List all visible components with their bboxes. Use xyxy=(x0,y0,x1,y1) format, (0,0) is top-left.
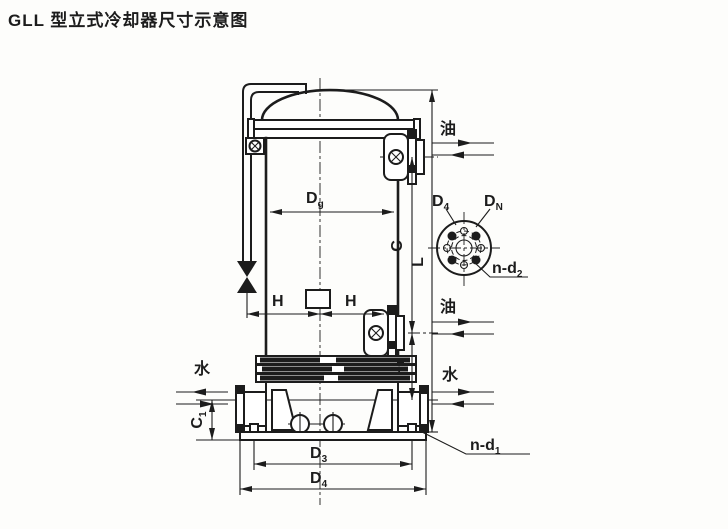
base-assembly xyxy=(236,382,428,440)
sight-glass xyxy=(306,290,330,308)
oil-mid-label: 油 xyxy=(440,297,456,316)
water-right-label: 水 xyxy=(442,365,459,384)
pipe-outer-line xyxy=(243,84,306,260)
oil-top-label: 油 xyxy=(440,119,456,138)
arrow-right xyxy=(458,140,472,147)
arrow-right xyxy=(458,319,472,326)
base-plate xyxy=(240,432,426,440)
d4-base-label: D4 xyxy=(310,470,328,490)
cooler-dimension-drawing: Dg H H C L L1 C1 D3 D4 n-d1 油 xyxy=(0,0,728,529)
skirt-gusset-right xyxy=(368,390,392,430)
dim-d4: D4 xyxy=(240,470,426,490)
h-right-label: H xyxy=(345,293,357,310)
flange-bolt-left xyxy=(246,138,264,154)
c1-label: C1 xyxy=(189,411,209,429)
flow-oil-mid: 油 xyxy=(432,297,494,338)
nozzle-cap xyxy=(416,140,424,174)
dim-d3: D3 xyxy=(254,445,412,465)
arrow-left xyxy=(450,152,464,159)
dn-detail-label: DN xyxy=(484,193,503,213)
c-label: C xyxy=(389,240,406,252)
base-bolt-block-left xyxy=(250,424,258,432)
flow-oil-top: 油 xyxy=(432,119,494,159)
flow-water-right: 水 xyxy=(432,365,494,408)
arrow-left xyxy=(192,389,206,396)
dg-label: Dg xyxy=(306,190,324,210)
valve-icon xyxy=(237,261,257,293)
base-bolt-block-right xyxy=(408,424,416,432)
h-left-label: H xyxy=(272,293,284,310)
pipe-inner-line xyxy=(251,92,298,260)
flange-bar-upper xyxy=(252,120,416,129)
water-left-label: 水 xyxy=(194,359,211,378)
dn-leader xyxy=(476,209,490,227)
dome-arc xyxy=(262,90,398,120)
d4-detail-label: D4 xyxy=(432,193,450,213)
d3-label: D3 xyxy=(310,445,328,465)
dim-dg: Dg xyxy=(270,190,394,212)
flange-end-tab-left xyxy=(248,119,254,139)
vent-pipe xyxy=(237,84,306,293)
arrow-left xyxy=(450,331,464,338)
callout-n-d1: n-d1 xyxy=(422,432,530,457)
arrow-right xyxy=(458,389,472,396)
arrow-left xyxy=(450,401,464,408)
l-label: L xyxy=(410,257,427,267)
flange-face-detail: D4 DN n-d2 xyxy=(428,193,528,286)
nozzle-cap xyxy=(396,316,404,350)
